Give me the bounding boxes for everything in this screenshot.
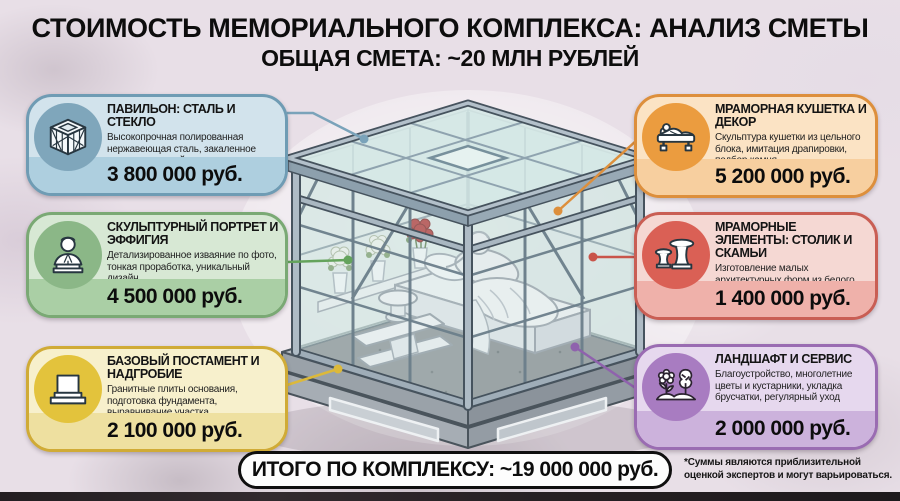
marble-couch-icon [653,114,699,160]
total-bar: ИТОГО ПО КОМПЛЕКСУ: ~19 000 000 руб. [238,451,672,489]
card-postament: БАЗОВЫЙ ПОСТАМЕНТ И НАДГРОБИЕ Гранитные … [26,346,288,452]
card-description: Изготовление малых архитектурных форм из… [715,263,868,281]
card-title: СКУЛЬПТУРНЫЙ ПОРТРЕТ И ЭФФИГИЯ [107,221,278,247]
page-subtitle: ОБЩАЯ СМЕТА: ~20 МЛН РУБЛЕЙ [0,45,900,72]
icon-circle [642,221,710,289]
icon-circle [34,103,102,171]
card-description: Гранитные плиты основания, подготовка фу… [107,384,278,413]
bottom-photo-strip [0,492,900,501]
card-title: ПАВИЛЬОН: СТАЛЬ И СТЕКЛО [107,103,278,129]
card-title: МРАМОРНАЯ КУШЕТКА И ДЕКОР [715,103,868,129]
card-elements: МРАМОРНЫЕ ЭЛЕМЕНТЫ: СТОЛИК И СКАМЬИ Изго… [634,212,878,320]
card-pavilion: ПАВИЛЬОН: СТАЛЬ И СТЕКЛО Высокопрочная п… [26,94,288,196]
icon-circle [34,355,102,423]
table-bench-icon [653,232,699,278]
infographic-canvas: СТОИМОСТЬ МЕМОРИАЛЬНОГО КОМПЛЕКСА: АНАЛИ… [0,0,900,501]
card-sculpture: СКУЛЬПТУРНЫЙ ПОРТРЕТ И ЭФФИГИЯ Детализир… [26,212,288,318]
card-title: БАЗОВЫЙ ПОСТАМЕНТ И НАДГРОБИЕ [107,355,278,381]
landscape-icon [653,364,699,410]
page-title: СТОИМОСТЬ МЕМОРИАЛЬНОГО КОМПЛЕКСА: АНАЛИ… [0,13,900,44]
icon-circle [642,103,710,171]
footnote: *Суммы являются приблизительной оценкой … [684,456,894,482]
icon-circle [642,353,710,421]
card-title: ЛАНДШАФТ И СЕРВИС [715,353,868,366]
glass-pavilion-icon [45,114,91,160]
icon-circle [34,221,102,289]
bust-icon [45,232,91,278]
card-landscape: ЛАНДШАФТ И СЕРВИС Благоустройство, много… [634,344,878,450]
card-description: Благоустройство, многолетние цветы и кус… [715,369,868,404]
card-description: Высокопрочная полированная нержавеющая с… [107,132,278,157]
pedestal-icon [45,366,91,412]
card-description: Детализированное изваяние по фото, тонка… [107,250,278,279]
card-description: Скульптура кушетки из цельного блока, им… [715,132,868,159]
card-title: МРАМОРНЫЕ ЭЛЕМЕНТЫ: СТОЛИК И СКАМЬИ [715,221,868,260]
card-couch: МРАМОРНАЯ КУШЕТКА И ДЕКОР Скульптура куш… [634,94,878,198]
